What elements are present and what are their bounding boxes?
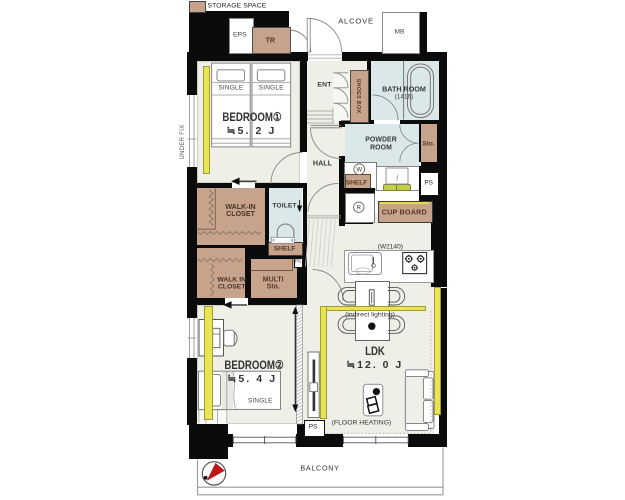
- svg-text:W: W: [356, 167, 362, 173]
- svg-text:R: R: [357, 205, 362, 211]
